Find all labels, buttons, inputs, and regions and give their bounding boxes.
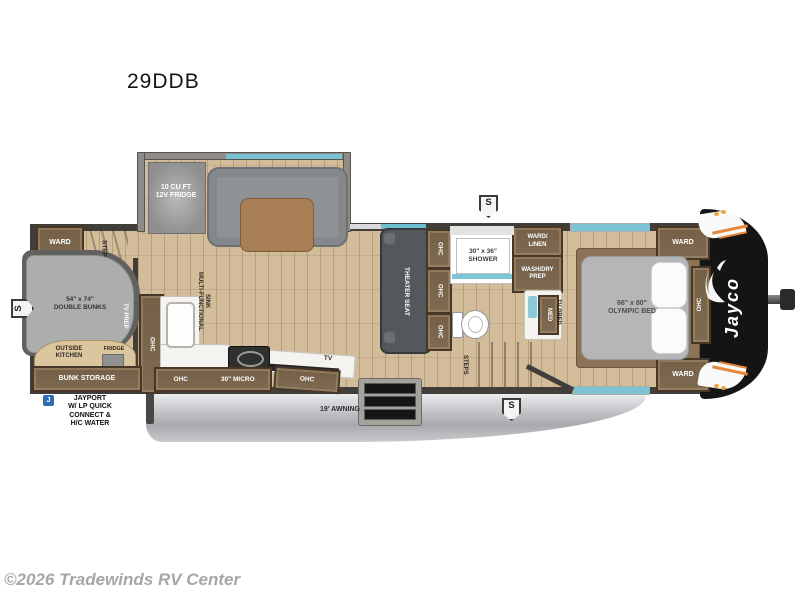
kitchen-ohc-label: OHC [156,376,206,384]
marker-light-top-1 [714,212,719,216]
bunk-storage-label: BUNK STORAGE [59,375,116,383]
micro-label: 30" MICRO [206,376,270,384]
pantry-ohc-label: OHC [148,337,156,351]
hitch-pin [780,289,795,310]
slide-wall-left [138,153,144,231]
ohc-right-label: OHC [300,376,315,385]
page-title: 29DDB [127,70,200,94]
bedroom-ward-top-label: WARD [672,239,693,247]
bedroom-tv-prep-label: TV PREP [554,288,561,336]
copyright: ©2026 Tradewinds RV Center [4,570,240,590]
marker-light-bottom-1 [714,384,719,388]
ward-linen-cabinet: WARD/ LINEN [512,226,563,257]
slide-window [226,154,342,159]
bunk-storage-bay: BUNK STORAGE [32,366,142,392]
cooktop-burner [237,351,264,367]
ohc-stack-2-label: OHC [435,284,442,297]
kitchen-sink [166,302,195,348]
bedroom-ward-bottom-label: WARD [672,371,693,379]
shower-label: 30" x 36" SHOWER [468,248,497,263]
ohc-stack-2: OHC [426,268,452,314]
speaker-badge-top: S [479,195,498,218]
ohc-right-bar: OHC [273,366,341,395]
dinette-table [240,198,314,252]
ward-linen-label: WARD/ LINEN [528,234,548,248]
ohc-stack-3-label: OHC [435,325,442,338]
bath-sink [528,296,537,318]
theater-armrest-top [384,233,395,244]
med-label: MED [545,308,552,321]
toilet-seat [468,316,483,333]
bunkroom-tv-prep-label: TV PREP [121,294,128,338]
entry-step-1 [364,383,416,394]
ohc-micro-bar: OHC 30" MICRO [154,367,272,392]
ohc-stack-1: OHC [426,229,452,269]
bedroom-window-bottom [572,386,650,395]
olympic-bed-label: 66" x 80" OLYMPIC BED [586,300,678,317]
theater-seat-label: THEATER SEAT [402,267,410,316]
tv-label: TV [318,354,338,363]
shower-glass [452,274,512,279]
bedroom-steps-label: STEPS [461,344,468,386]
double-bunks-label: 54" x 74" DOUBLE BUNKS [54,296,106,311]
jayco-logo: Jayco [722,252,743,362]
entry-step-3 [364,409,416,420]
outside-fridge-label: FRIDGE [96,346,132,352]
fridge-12v-label: 10 CU FT 12V FRIDGE [148,184,204,201]
multifunctional-sink-label: MULTI-FUNCTIONAL SINK [196,258,210,344]
bedroom-steps [478,342,532,387]
rear-ward-label: WARD [49,239,70,247]
marker-light-top-2 [721,210,726,214]
theater-armrest-bottom [384,332,395,343]
ohc-stack-1-label: OHC [435,242,442,255]
bedroom-window-top [570,223,650,232]
entry-step-2 [364,396,416,407]
wash-dry-prep-label: WASH/DRY PREP [521,267,553,281]
marker-light-bottom-2 [721,386,726,390]
ohc-stack-3: OHC [426,313,452,351]
shower-pan: 30" x 36" SHOWER [456,238,510,274]
jayport-note: JAYPORT W/ LP QUICK CONNECT & H/C WATER [52,395,128,428]
outside-kitchen-label: OUTSIDE KITCHEN [40,346,98,360]
shower-top-trim [450,226,514,235]
double-bunks: 54" x 74" DOUBLE BUNKS [26,255,134,353]
jayport-icon-letter: J [46,396,50,405]
